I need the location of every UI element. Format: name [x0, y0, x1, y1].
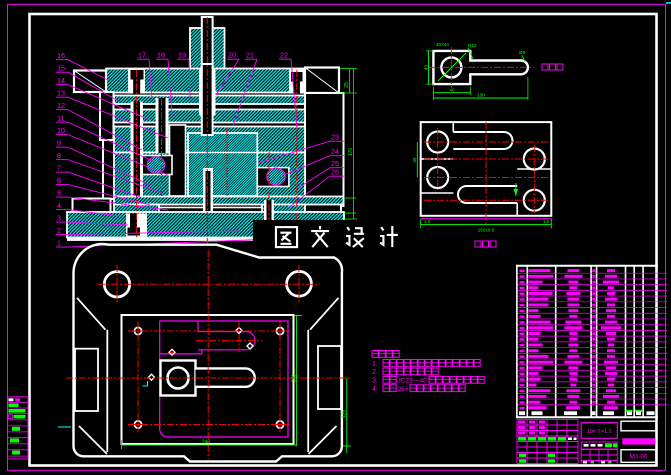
svg-text:1.: 1.: [372, 361, 378, 368]
svg-text:1.0: 1.0: [543, 219, 550, 224]
svg-text:5: 5: [57, 188, 61, 197]
svg-text:MJ-00: MJ-00: [630, 454, 648, 461]
svg-text:19: 19: [178, 51, 186, 60]
svg-text:20: 20: [228, 51, 236, 60]
svg-text:2: 2: [57, 226, 61, 235]
svg-text:26: 26: [331, 168, 339, 177]
svg-text:17: 17: [138, 51, 146, 60]
svg-text:13: 13: [57, 89, 65, 98]
svg-text:3.: 3.: [372, 378, 378, 385]
svg-text:40: 40: [449, 88, 455, 93]
svg-text:200: 200: [292, 374, 298, 383]
svg-text:1: 1: [57, 238, 61, 247]
svg-text:21: 21: [246, 51, 254, 60]
svg-text:40: 40: [424, 65, 429, 71]
svg-text:15: 15: [57, 64, 65, 73]
svg-text:18: 18: [157, 51, 165, 60]
svg-text:150: 150: [477, 93, 485, 98]
svg-text:4.: 4.: [372, 386, 378, 393]
svg-text:2.: 2.: [372, 369, 378, 376]
svg-text:6: 6: [57, 176, 61, 185]
svg-text:23: 23: [331, 133, 339, 142]
svg-text:7: 7: [57, 164, 61, 173]
svg-text:10: 10: [57, 126, 65, 135]
svg-text:Ø6: Ø6: [519, 50, 526, 55]
svg-text::: :: [401, 352, 403, 359]
svg-text:4: 4: [57, 201, 61, 210]
svg-text:10# T=1.2: 10# T=1.2: [587, 429, 612, 435]
svg-text:1.0: 1.0: [424, 219, 431, 224]
svg-text:24: 24: [331, 147, 339, 156]
svg-text:JC23—40T: JC23—40T: [398, 378, 431, 385]
svg-text:125: 125: [342, 410, 348, 419]
svg-text:25: 25: [344, 82, 350, 88]
svg-text:170: 170: [348, 148, 354, 157]
svg-text:26#: 26#: [398, 386, 409, 393]
svg-text:14: 14: [57, 76, 65, 85]
svg-text:240: 240: [202, 440, 211, 446]
svg-text:11: 11: [57, 114, 64, 123]
svg-text:16: 16: [57, 51, 65, 60]
svg-text:150±0.5: 150±0.5: [478, 228, 495, 233]
svg-text:8: 8: [57, 151, 61, 160]
svg-text:R10: R10: [468, 43, 477, 48]
svg-text:12: 12: [57, 101, 65, 110]
svg-text:3: 3: [57, 213, 61, 222]
svg-text:45: 45: [412, 157, 417, 163]
svg-text:9: 9: [57, 139, 61, 148]
svg-text:40×40: 40×40: [436, 42, 449, 47]
svg-text:22: 22: [280, 51, 288, 60]
